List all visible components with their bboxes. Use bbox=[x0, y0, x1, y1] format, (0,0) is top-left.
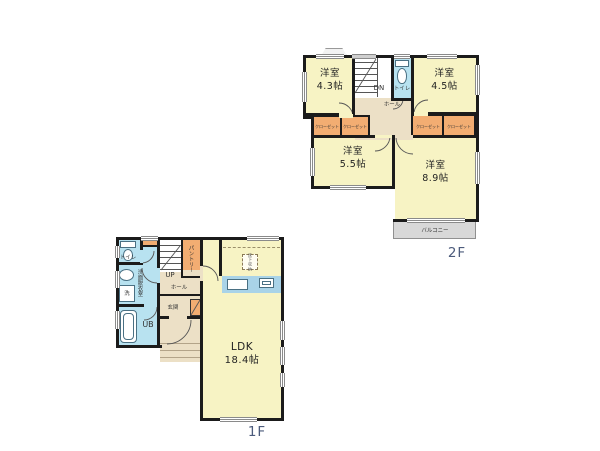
washroom-text: 洗面脱衣室 bbox=[136, 269, 143, 296]
wall-segment bbox=[116, 345, 162, 348]
balcony-label: バルコニー bbox=[421, 226, 448, 233]
door-opening bbox=[339, 114, 353, 118]
window bbox=[310, 148, 315, 176]
sink-basin-icon bbox=[262, 281, 271, 285]
window bbox=[247, 236, 279, 241]
wall-segment bbox=[413, 135, 476, 138]
window bbox=[475, 65, 480, 95]
room-name: 洋室 bbox=[434, 68, 454, 81]
bath-label: UB bbox=[138, 318, 158, 330]
door-opening bbox=[144, 304, 157, 307]
wall-segment bbox=[392, 135, 395, 189]
window bbox=[115, 311, 120, 329]
wall-segment bbox=[181, 237, 183, 278]
toilet-tank-1f-icon bbox=[120, 241, 136, 248]
balcony: バルコニー bbox=[393, 221, 476, 239]
window bbox=[394, 54, 410, 59]
porch-floor bbox=[160, 320, 201, 362]
wall-segment bbox=[200, 237, 203, 266]
wall-segment bbox=[181, 276, 202, 278]
window bbox=[115, 246, 120, 258]
window bbox=[141, 236, 158, 241]
window bbox=[115, 271, 120, 288]
wall-segment bbox=[157, 294, 202, 296]
wall-segment bbox=[391, 55, 394, 101]
stairs-up-label: UP bbox=[158, 270, 182, 280]
wall-segment bbox=[200, 281, 203, 421]
toilet-bowl-2f-icon bbox=[397, 68, 407, 84]
hall-2f-text: ホール bbox=[384, 100, 400, 107]
wall-segment bbox=[219, 237, 222, 276]
room-name: 洋室 bbox=[320, 68, 340, 81]
bathtub-inner-icon bbox=[123, 313, 134, 340]
floor-plan-canvas: クローゼット クローゼット クローゼット クローゼット バルコニー 床下収納 bbox=[0, 0, 600, 451]
window bbox=[427, 54, 457, 59]
floor-1-label: 1F bbox=[237, 425, 277, 439]
wall-segment bbox=[157, 237, 160, 268]
washer-space-icon: 洗 bbox=[119, 285, 135, 302]
washer-label: 洗 bbox=[124, 290, 129, 297]
toilet-2f-label: トイレ bbox=[391, 83, 413, 93]
window bbox=[220, 417, 257, 422]
room-label-bedroom-4-5: 洋室 4.5帖 bbox=[413, 68, 476, 94]
underfloor-storage-hatch: 床下収納 bbox=[242, 254, 258, 270]
kitchen-hood-dashline bbox=[223, 247, 280, 248]
room-size: 4.5帖 bbox=[431, 81, 458, 94]
wall-segment bbox=[303, 113, 339, 116]
toilet-tank-2f-icon bbox=[395, 60, 409, 67]
window bbox=[330, 185, 366, 190]
door-opening bbox=[200, 266, 203, 281]
door-arcs-overlay bbox=[0, 0, 600, 451]
wall-segment bbox=[352, 55, 355, 117]
porch-step-line bbox=[160, 343, 201, 344]
window bbox=[407, 218, 465, 223]
room-name: 洋室 bbox=[343, 146, 363, 159]
underfloor-storage-label: 床下収納 bbox=[247, 253, 254, 271]
window bbox=[316, 54, 344, 59]
closet-1-label: クローゼット bbox=[315, 124, 339, 130]
wall-segment bbox=[116, 262, 143, 265]
room-label-bedroom-4-3: 洋室 4.3帖 bbox=[305, 68, 355, 94]
stairs-dn-label: DN bbox=[368, 83, 390, 93]
door-opening bbox=[140, 250, 143, 263]
closet-2-label: クローゼット bbox=[343, 124, 367, 130]
window bbox=[280, 321, 285, 340]
room-size: 5.5帖 bbox=[340, 159, 367, 172]
stove-icon bbox=[227, 279, 248, 290]
wall-segment bbox=[391, 98, 414, 101]
stairs-1f-treads bbox=[160, 240, 181, 272]
entrance-text: 玄関 bbox=[168, 303, 179, 310]
window bbox=[475, 152, 480, 184]
door-opening bbox=[395, 135, 413, 138]
wall-segment bbox=[411, 55, 414, 115]
wall-segment bbox=[428, 112, 476, 115]
closet-4-label: クローゼット bbox=[447, 123, 471, 129]
hall-1f-label: ホール bbox=[158, 282, 200, 292]
room-label-bedroom-5-5: 洋室 5.5帖 bbox=[314, 146, 392, 172]
window bbox=[280, 373, 285, 387]
room-size: 4.3帖 bbox=[317, 81, 344, 94]
washbasin-icon bbox=[119, 269, 134, 281]
wall-segment bbox=[157, 283, 160, 347]
room-size: 18.4帖 bbox=[225, 354, 260, 368]
window bbox=[302, 72, 307, 102]
door-opening bbox=[169, 316, 187, 320]
door-opening bbox=[414, 112, 428, 116]
door-opening bbox=[157, 268, 160, 283]
room-label-ldk: LDK 18.4帖 bbox=[203, 340, 281, 368]
window bbox=[352, 54, 376, 59]
room-name: LDK bbox=[231, 340, 253, 354]
hall-1f-text: ホール bbox=[171, 283, 187, 290]
washroom-label: 洗面脱衣室 bbox=[134, 260, 146, 306]
door-opening bbox=[375, 135, 392, 138]
pantry-label: パントリー bbox=[184, 241, 198, 277]
closet-3-label: クローゼット bbox=[416, 123, 440, 129]
pantry-text: パントリー bbox=[187, 245, 194, 272]
wall-segment bbox=[311, 135, 375, 138]
room-name: 洋室 bbox=[425, 160, 445, 173]
wall-segment bbox=[116, 304, 144, 307]
entrance-label: 玄関 bbox=[157, 302, 189, 312]
toilet-2f-text: トイレ bbox=[394, 84, 410, 91]
porch-step-line bbox=[160, 350, 201, 351]
wall-segment bbox=[142, 245, 158, 247]
porch-step-line bbox=[160, 357, 201, 358]
room-size: 8.9帖 bbox=[422, 173, 449, 186]
room-label-bedroom-8-9: 洋室 8.9帖 bbox=[395, 160, 476, 186]
floor-2-label: 2F bbox=[437, 246, 477, 260]
window bbox=[280, 347, 285, 365]
